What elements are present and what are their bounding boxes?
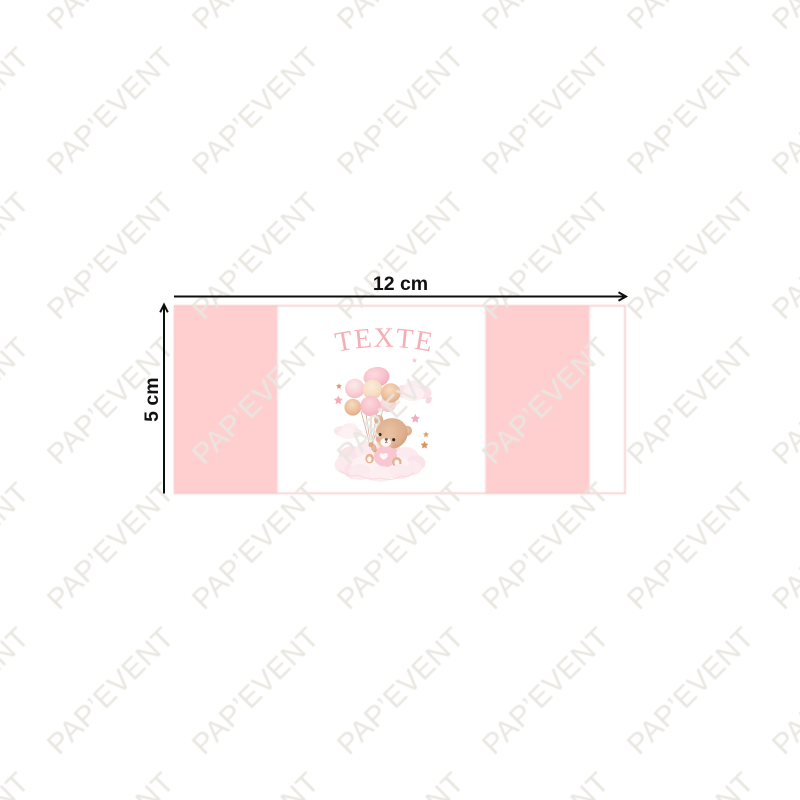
svg-text:12 cm: 12 cm xyxy=(373,273,428,295)
svg-text:5 cm: 5 cm xyxy=(141,377,163,421)
